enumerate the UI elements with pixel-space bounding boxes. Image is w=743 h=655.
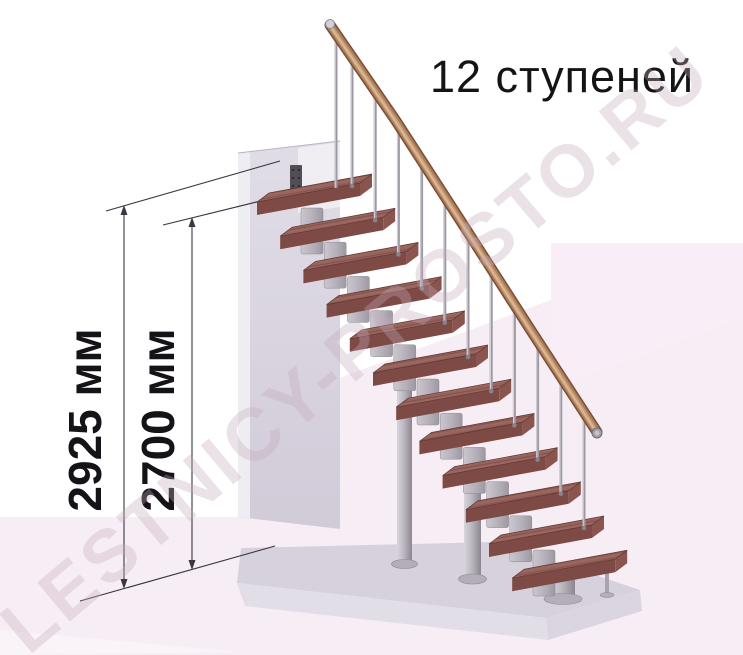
- baluster-foot: [489, 389, 494, 394]
- mount-hole: [292, 185, 294, 187]
- baluster-foot: [466, 355, 471, 360]
- post-base-flange: [392, 560, 418, 569]
- baluster-foot: [559, 492, 564, 497]
- baluster-foot: [512, 423, 517, 428]
- handrail-end-cap-center: [595, 431, 600, 436]
- baluster-foot: [582, 526, 587, 531]
- baluster-foot: [373, 218, 378, 223]
- dimension-label-2925: 2925 мм: [59, 328, 111, 511]
- diagram-svg: 2925 мм 2700 мм 12 ступеней LESTNICY-PRO…: [0, 0, 743, 655]
- handrail-top-cap: [326, 20, 335, 29]
- mount-hole: [292, 169, 294, 171]
- baluster-foot: [535, 457, 540, 462]
- staircase-diagram: 2925 мм 2700 мм 12 ступеней LESTNICY-PRO…: [0, 0, 743, 655]
- mount-hole: [292, 177, 294, 179]
- baluster-foot: [350, 184, 355, 189]
- mount-hole: [298, 169, 300, 171]
- post-base-flange: [459, 574, 487, 584]
- rod-foot: [600, 593, 614, 598]
- mount-hole: [298, 185, 300, 187]
- mount-hole: [298, 177, 300, 179]
